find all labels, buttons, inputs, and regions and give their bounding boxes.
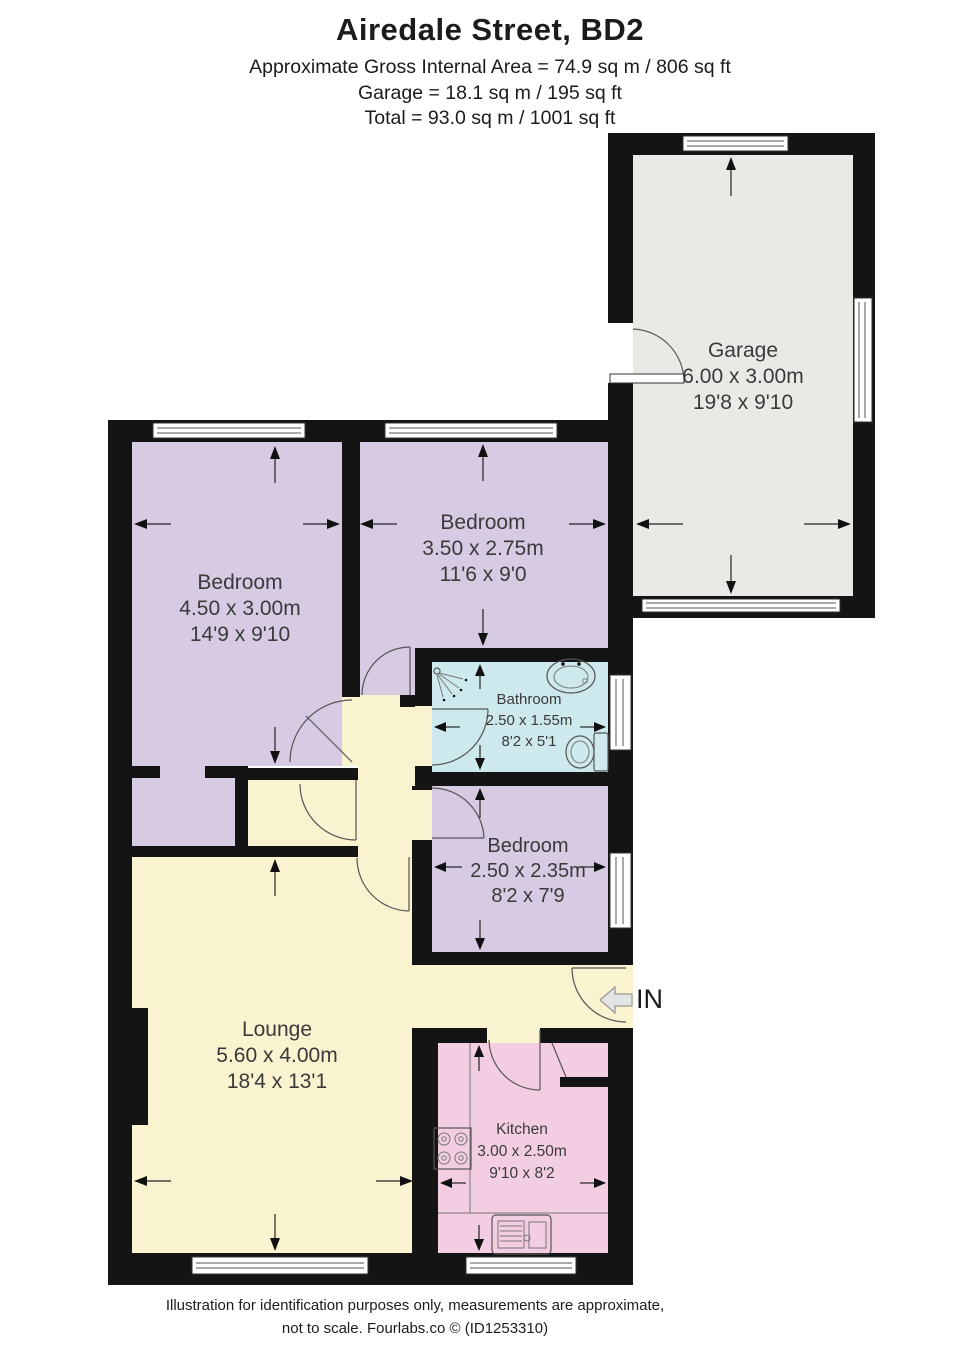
lounge-chimney-breast — [130, 1008, 148, 1125]
hallway-floor — [358, 695, 415, 857]
bedroom2-name: Bedroom — [383, 510, 583, 536]
kitchen-imperial: 9'10 x 8'2 — [437, 1163, 607, 1185]
kitchen-metric: 3.00 x 2.50m — [437, 1141, 607, 1163]
bedroom3-metric: 2.50 x 2.35m — [428, 859, 628, 884]
disclaimer: Illustration for identification purposes… — [0, 1294, 830, 1340]
bedroom2-metric: 3.50 x 2.75m — [383, 536, 583, 562]
kitchen-door-gap — [487, 1028, 540, 1043]
wardrobe-nook-floor — [248, 778, 358, 846]
lounge-label: Lounge 5.60 x 4.00m 18'4 x 13'1 — [177, 1017, 377, 1095]
disclaimer-line1: Illustration for identification purposes… — [0, 1294, 830, 1317]
garage-bottom-window — [642, 599, 840, 612]
bedroom2-label: Bedroom 3.50 x 2.75m 11'6 x 9'0 — [383, 510, 583, 588]
entrance-in-label: IN — [636, 984, 663, 1015]
bedroom1-name: Bedroom — [140, 570, 340, 596]
garage-imperial: 19'8 x 9'10 — [643, 390, 843, 416]
lounge-metric: 5.60 x 4.00m — [177, 1043, 377, 1069]
kitchen-label: Kitchen 3.00 x 2.50m 9'10 x 8'2 — [437, 1119, 607, 1185]
bedroom3-label: Bedroom 2.50 x 2.35m 8'2 x 7'9 — [428, 834, 628, 909]
entrance-corridor-floor — [412, 965, 608, 1028]
bedroom3-door-gap — [412, 790, 432, 840]
closet-wall-left — [132, 766, 160, 778]
bedroom1-label: Bedroom 4.50 x 3.00m 14'9 x 9'10 — [140, 570, 340, 648]
kitchen-cupboard-stub — [560, 1077, 608, 1087]
lounge-window — [192, 1257, 368, 1274]
wardrobe-top-wall — [248, 768, 358, 780]
bedroom2-bottom-wall — [415, 648, 633, 662]
closet-divider-wall — [235, 766, 248, 846]
bathroom-metric: 2.50 x 1.55m — [444, 710, 614, 731]
bed1-bed2-divider-wall — [342, 442, 360, 697]
bedroom1-metric: 4.50 x 3.00m — [140, 596, 340, 622]
garage-label: Garage 6.00 x 3.00m 19'8 x 9'10 — [643, 338, 843, 416]
bathroom-door-gap — [415, 706, 432, 766]
bedroom1-imperial: 14'9 x 9'10 — [140, 622, 340, 648]
lounge-top-wall — [108, 846, 358, 857]
bedroom2-door-notch-floor — [358, 648, 415, 695]
garage-top-window — [683, 136, 788, 151]
bedroom1-door-gap — [342, 697, 360, 766]
bathroom-label: Bathroom 2.50 x 1.55m 8'2 x 5'1 — [444, 689, 614, 752]
lounge-name: Lounge — [177, 1017, 377, 1043]
bedroom3-imperial: 8'2 x 7'9 — [428, 884, 628, 909]
kitchen-window — [466, 1257, 576, 1274]
bathroom-imperial: 8'2 x 5'1 — [444, 731, 614, 752]
bedroom2-imperial: 11'6 x 9'0 — [383, 562, 583, 588]
garage-metric: 6.00 x 3.00m — [643, 364, 843, 390]
bathroom-bottom-wall — [415, 772, 633, 786]
floorplan-page: Airedale Street, BD2 Approximate Gross I… — [0, 0, 980, 1360]
garage-name: Garage — [643, 338, 843, 364]
disclaimer-line2: not to scale. Fourlabs.co © (ID1253310) — [0, 1317, 830, 1340]
garage-right-window — [854, 298, 872, 422]
bedroom3-bottom-wall — [412, 952, 633, 965]
bedroom3-name: Bedroom — [428, 834, 628, 859]
bathroom-name: Bathroom — [444, 689, 614, 710]
lounge-imperial: 18'4 x 13'1 — [177, 1069, 377, 1095]
kitchen-name: Kitchen — [437, 1119, 607, 1141]
bedroom2-window — [385, 423, 557, 438]
bedroom1-window — [153, 423, 305, 438]
